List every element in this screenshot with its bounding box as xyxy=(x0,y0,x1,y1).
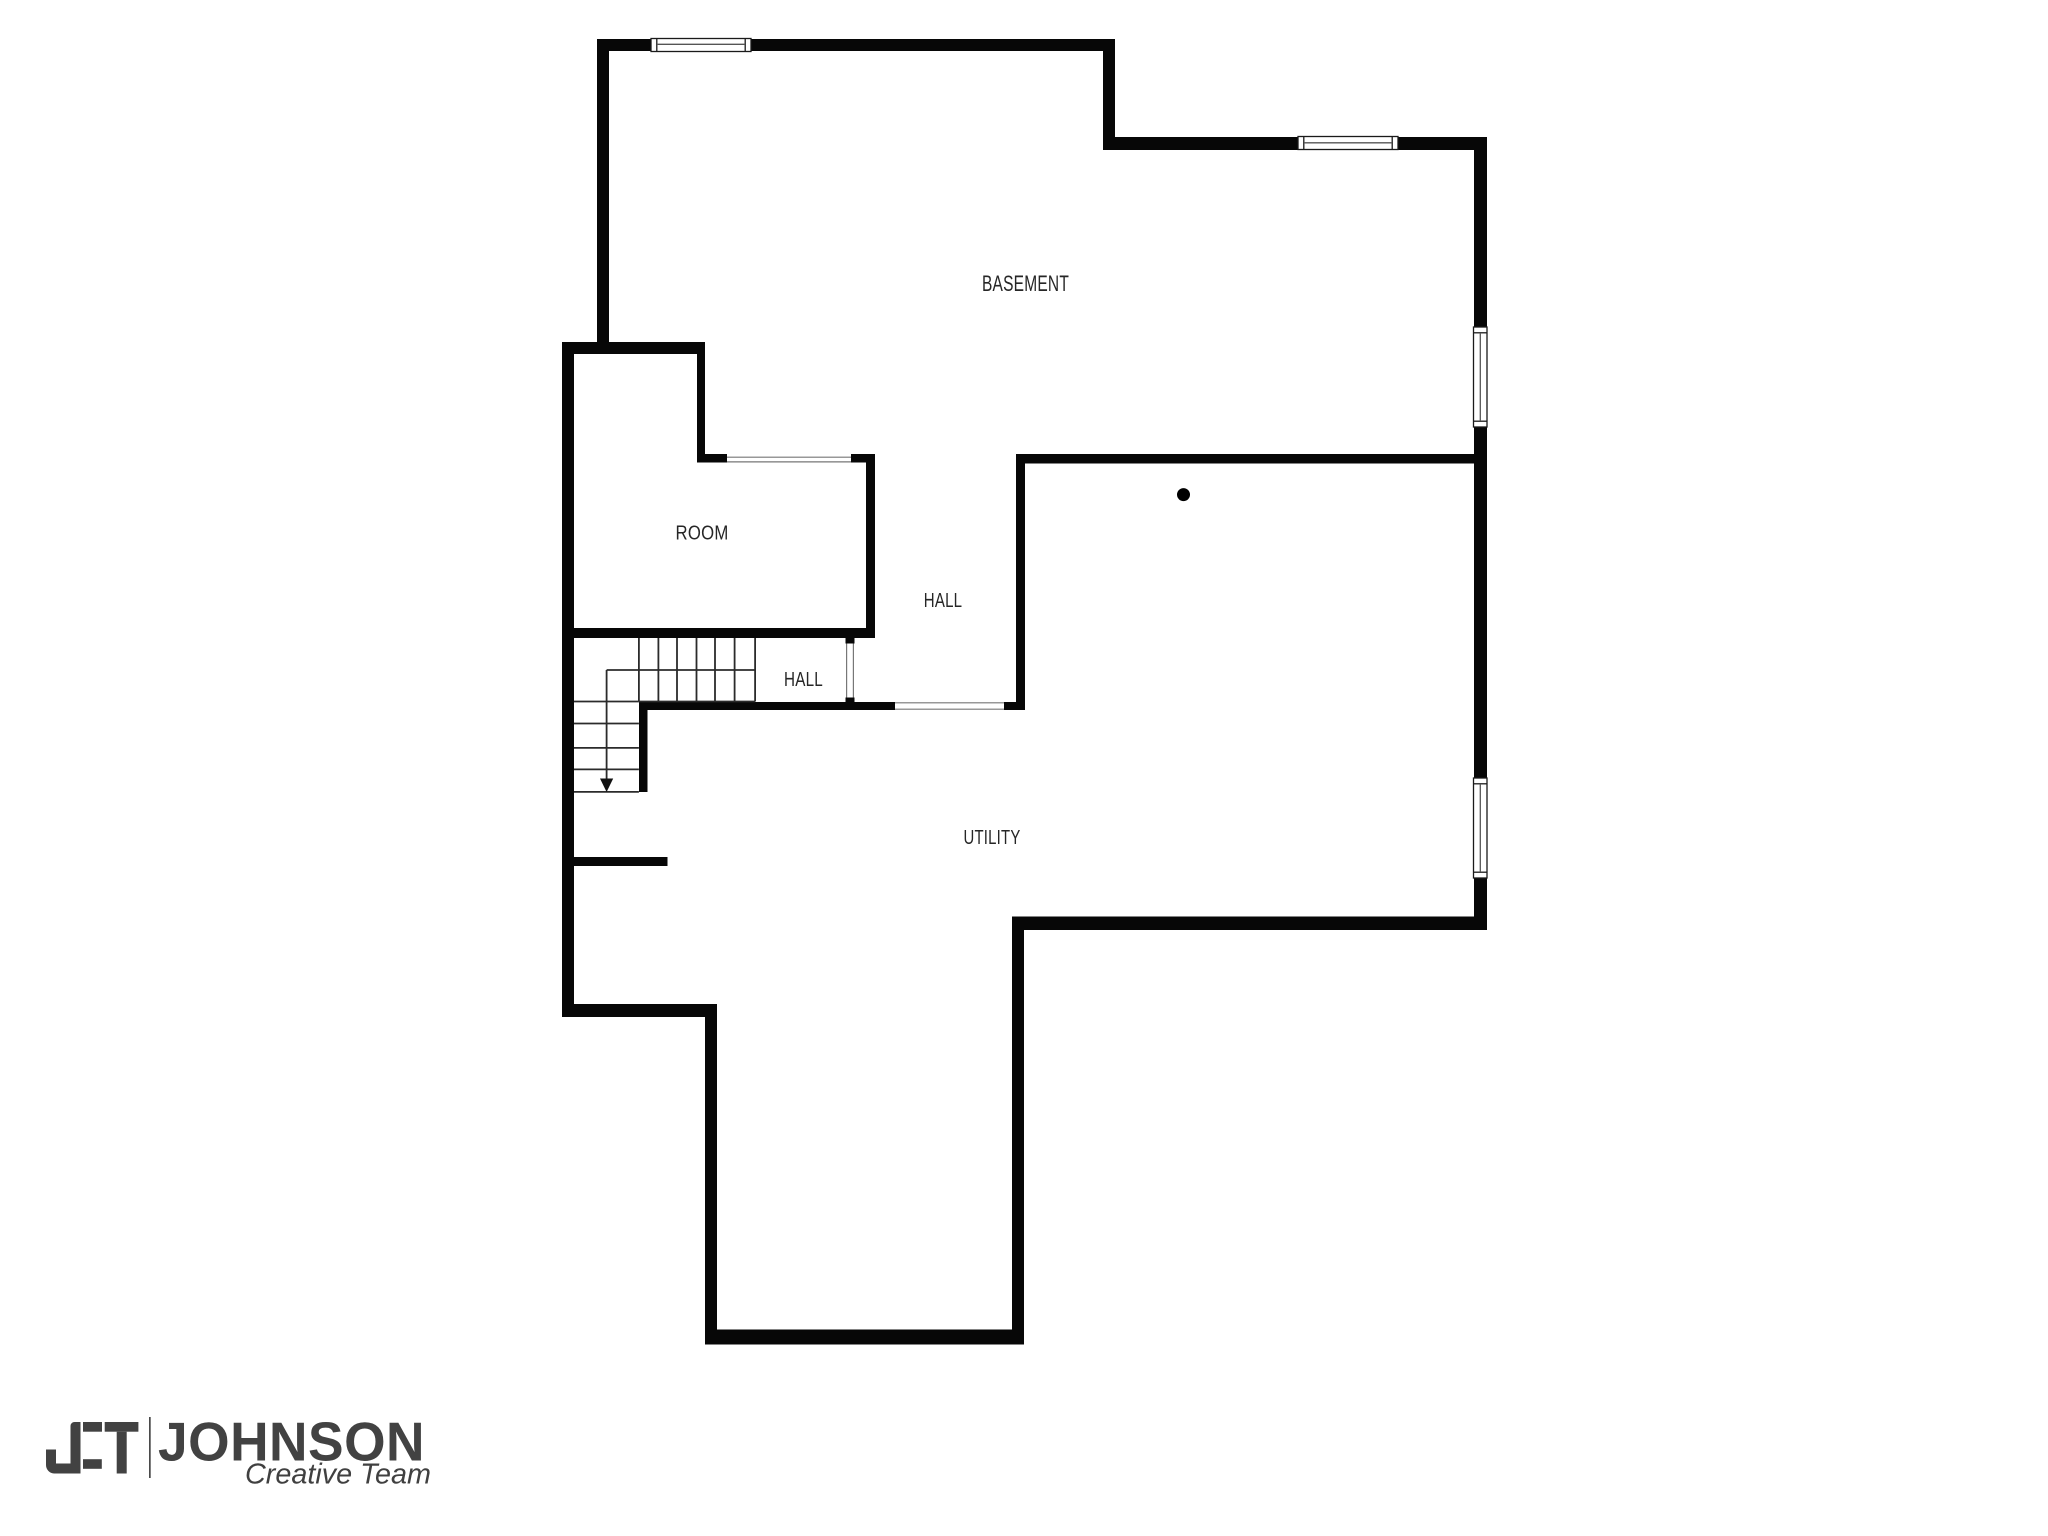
svg-text:Creative Team: Creative Team xyxy=(245,1459,431,1491)
svg-text:UTILITY: UTILITY xyxy=(964,826,1021,849)
svg-text:HALL: HALL xyxy=(924,589,963,612)
svg-text:BASEMENT: BASEMENT xyxy=(982,271,1069,296)
svg-text:HALL: HALL xyxy=(784,668,823,691)
svg-text:ROOM: ROOM xyxy=(676,522,729,545)
